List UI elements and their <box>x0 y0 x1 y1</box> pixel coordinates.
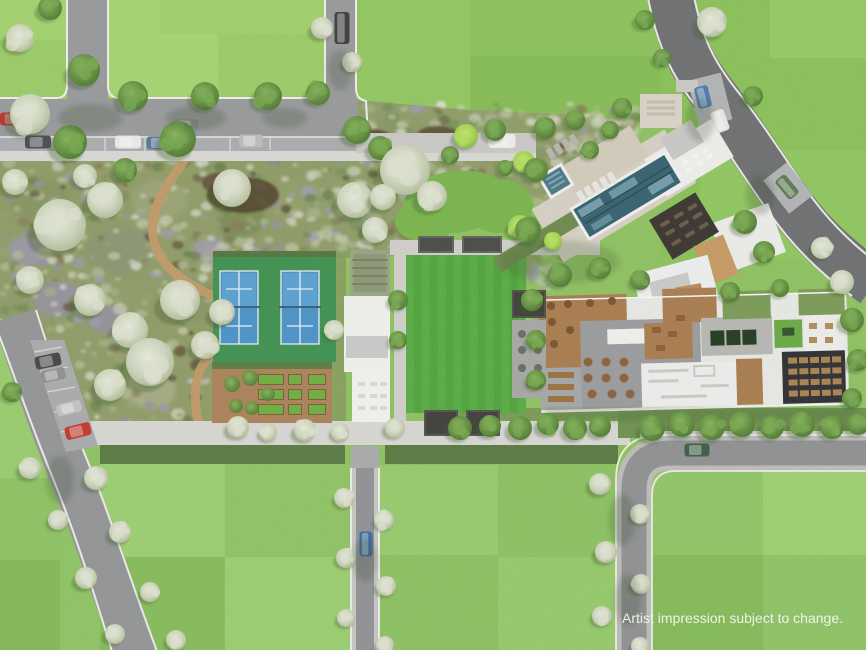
svg-text:Artist impression subject to c: Artist impression subject to change. <box>622 610 843 626</box>
